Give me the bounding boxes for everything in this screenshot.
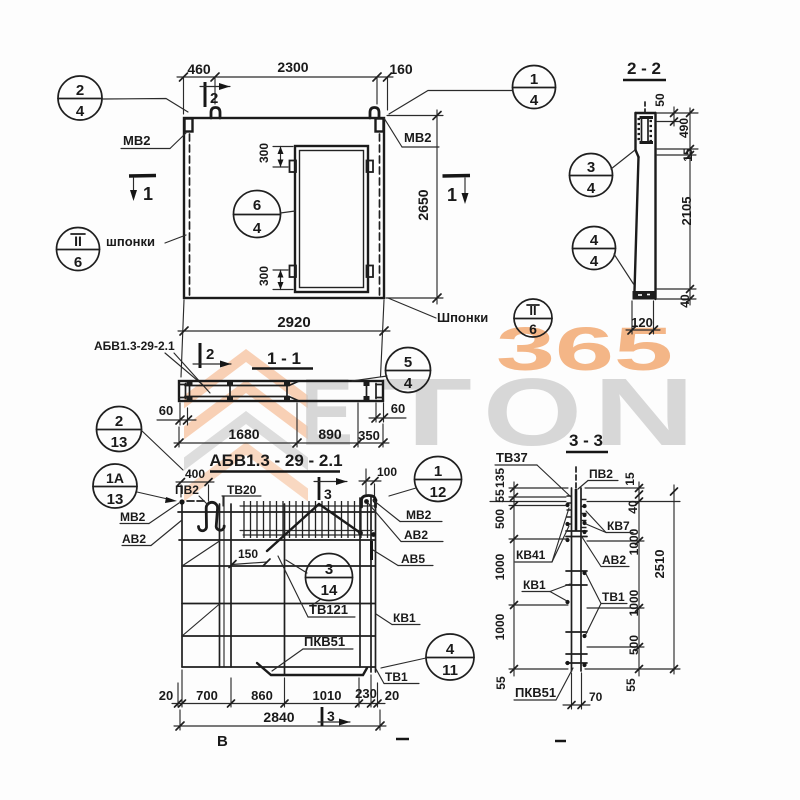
- svg-text:60: 60: [159, 403, 173, 418]
- svg-text:15: 15: [623, 472, 637, 486]
- svg-text:Шпонки: Шпонки: [437, 310, 488, 325]
- svg-text:АВ5: АВ5: [401, 552, 425, 566]
- svg-text:2650: 2650: [415, 189, 431, 220]
- svg-text:1010: 1010: [313, 688, 342, 703]
- svg-text:2 - 2: 2 - 2: [627, 59, 661, 78]
- svg-text:4: 4: [590, 232, 599, 249]
- svg-text:3: 3: [587, 159, 595, 176]
- svg-text:АВ2: АВ2: [404, 528, 428, 542]
- svg-text:2: 2: [206, 346, 214, 363]
- svg-text:ПВ2: ПВ2: [589, 467, 613, 481]
- svg-text:400: 400: [185, 467, 205, 481]
- svg-text:2920: 2920: [277, 314, 310, 331]
- svg-text:3: 3: [327, 708, 335, 724]
- svg-text:55: 55: [624, 678, 638, 692]
- svg-text:13: 13: [111, 434, 128, 451]
- svg-text:860: 860: [251, 688, 273, 703]
- svg-text:II: II: [74, 233, 82, 249]
- svg-text:3: 3: [324, 486, 332, 502]
- svg-text:АВ2: АВ2: [122, 532, 146, 546]
- svg-text:МВ2: МВ2: [406, 508, 432, 522]
- svg-text:1А: 1А: [106, 470, 124, 486]
- svg-text:4: 4: [590, 253, 599, 270]
- svg-text:1: 1: [447, 185, 457, 205]
- svg-text:2105: 2105: [679, 197, 694, 226]
- svg-text:4: 4: [253, 220, 262, 237]
- svg-text:50: 50: [653, 93, 667, 107]
- svg-text:14: 14: [321, 582, 338, 599]
- svg-text:КВ1: КВ1: [523, 578, 546, 592]
- svg-text:13: 13: [107, 491, 124, 508]
- svg-text:КВ7: КВ7: [607, 519, 630, 533]
- svg-text:2300: 2300: [277, 59, 308, 75]
- svg-text:шпонки: шпонки: [106, 234, 155, 249]
- svg-text:АБВ1.3-29-2.1: АБВ1.3-29-2.1: [94, 339, 175, 353]
- svg-text:300: 300: [257, 266, 271, 286]
- svg-text:2: 2: [210, 90, 218, 107]
- svg-text:КВ41: КВ41: [516, 548, 546, 562]
- svg-text:460: 460: [187, 61, 211, 77]
- svg-text:МВ2: МВ2: [404, 130, 431, 145]
- svg-text:700: 700: [196, 688, 218, 703]
- svg-text:4: 4: [530, 92, 539, 109]
- svg-text:2510: 2510: [652, 550, 667, 579]
- svg-text:55: 55: [494, 676, 508, 690]
- svg-text:500: 500: [493, 509, 507, 529]
- svg-text:1000: 1000: [493, 613, 507, 640]
- svg-text:12: 12: [430, 484, 447, 501]
- svg-text:ПКВ51: ПКВ51: [515, 685, 556, 700]
- svg-text:2840: 2840: [263, 709, 294, 725]
- svg-text:4: 4: [404, 375, 413, 392]
- svg-text:ПКВ51: ПКВ51: [304, 634, 345, 649]
- svg-text:КВ1: КВ1: [393, 611, 416, 625]
- svg-text:В: В: [217, 733, 228, 750]
- svg-text:20: 20: [159, 688, 173, 703]
- svg-text:20: 20: [385, 688, 399, 703]
- svg-text:ТВ1: ТВ1: [602, 590, 625, 604]
- svg-text:100: 100: [377, 465, 397, 479]
- svg-text:II: II: [529, 303, 536, 318]
- svg-text:890: 890: [318, 426, 342, 442]
- svg-text:40: 40: [626, 500, 640, 514]
- svg-text:МВ2: МВ2: [120, 510, 146, 524]
- svg-text:ТВ20: ТВ20: [227, 483, 257, 497]
- svg-text:135: 135: [493, 468, 507, 488]
- svg-text:1: 1: [143, 184, 153, 204]
- svg-text:2: 2: [76, 82, 84, 99]
- svg-text:70: 70: [589, 690, 603, 704]
- svg-text:15: 15: [681, 148, 695, 162]
- svg-text:4: 4: [76, 103, 85, 120]
- svg-text:3: 3: [325, 561, 333, 578]
- svg-text:ТВ121: ТВ121: [309, 602, 348, 617]
- svg-text:МВ2: МВ2: [123, 133, 150, 148]
- svg-text:120: 120: [631, 315, 653, 330]
- svg-text:АВ2: АВ2: [602, 553, 626, 567]
- svg-text:4: 4: [446, 641, 455, 658]
- svg-text:350: 350: [358, 428, 380, 443]
- svg-text:160: 160: [389, 61, 413, 77]
- svg-text:6: 6: [253, 197, 261, 214]
- svg-text:5: 5: [404, 354, 412, 371]
- svg-text:ТВ1: ТВ1: [385, 670, 408, 684]
- svg-text:490: 490: [677, 118, 691, 138]
- svg-text:ТВ37: ТВ37: [496, 450, 528, 465]
- svg-text:1680: 1680: [228, 426, 259, 442]
- svg-text:40: 40: [678, 294, 692, 308]
- svg-text:6: 6: [529, 321, 537, 337]
- svg-text:1: 1: [434, 463, 442, 480]
- svg-text:2: 2: [115, 413, 123, 430]
- svg-text:E: E: [301, 359, 353, 466]
- svg-text:11: 11: [442, 662, 458, 679]
- svg-text:1000: 1000: [493, 553, 507, 580]
- svg-text:300: 300: [257, 143, 271, 163]
- svg-text:150: 150: [238, 547, 258, 561]
- svg-text:1000: 1000: [627, 589, 641, 616]
- svg-text:1: 1: [530, 71, 538, 88]
- svg-text:6: 6: [74, 254, 82, 271]
- svg-text:3 - 3: 3 - 3: [569, 431, 603, 450]
- svg-text:1 - 1: 1 - 1: [267, 349, 301, 368]
- svg-text:АБВ1.3 - 29 - 2.1: АБВ1.3 - 29 - 2.1: [209, 451, 342, 470]
- svg-text:230: 230: [355, 686, 377, 701]
- svg-text:500: 500: [627, 635, 641, 655]
- svg-text:ПВ2: ПВ2: [175, 483, 199, 497]
- svg-text:60: 60: [391, 401, 405, 416]
- svg-text:55: 55: [493, 489, 507, 503]
- svg-text:4: 4: [587, 180, 596, 197]
